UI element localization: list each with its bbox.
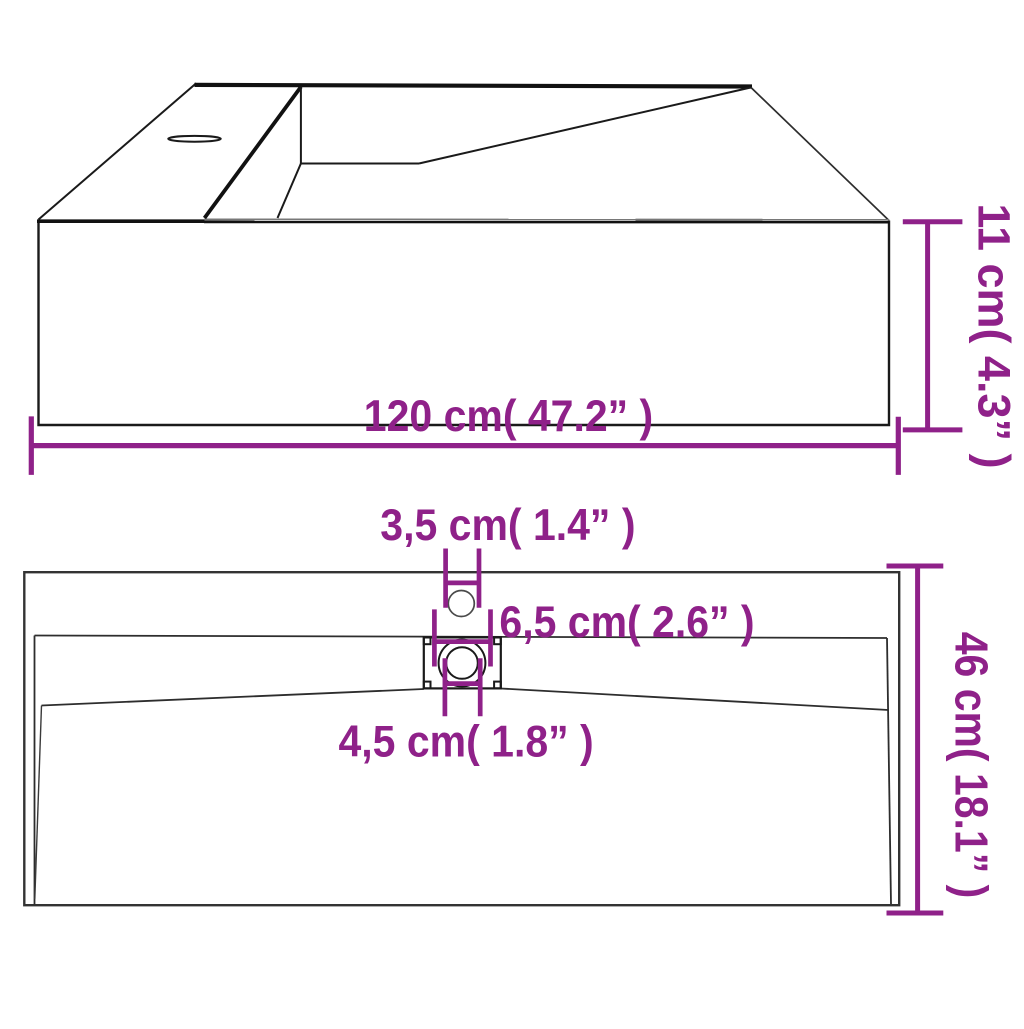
svg-text:6,5 cm( 2.6” ): 6,5 cm( 2.6” ) [499, 597, 754, 647]
svg-text:120 cm( 47.2” ): 120 cm( 47.2” ) [364, 391, 653, 441]
svg-text:46 cm( 18.1” ): 46 cm( 18.1” ) [945, 632, 997, 899]
svg-text:4,5 cm( 1.8” ): 4,5 cm( 1.8” ) [339, 717, 594, 767]
svg-text:3,5 cm( 1.4” ): 3,5 cm( 1.4” ) [380, 500, 635, 550]
svg-text:11 cm( 4.3” ): 11 cm( 4.3” ) [969, 203, 1020, 468]
